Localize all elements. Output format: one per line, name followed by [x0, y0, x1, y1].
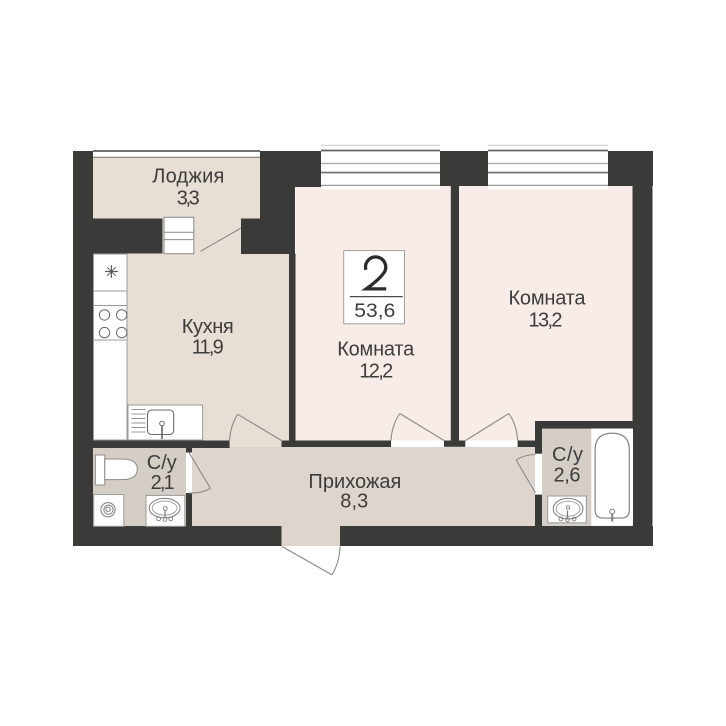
- svg-text:Комната: Комната: [337, 339, 415, 361]
- svg-text:11,9: 11,9: [192, 337, 224, 359]
- svg-text:53,6: 53,6: [354, 300, 395, 322]
- svg-text:Прихожая: Прихожая: [308, 471, 401, 493]
- svg-text:12,2: 12,2: [359, 361, 393, 383]
- svg-text:8,3: 8,3: [340, 491, 368, 513]
- svg-text:3,3: 3,3: [177, 187, 200, 209]
- svg-text:2,6: 2,6: [554, 465, 581, 487]
- svg-text:Лоджия: Лоджия: [152, 165, 224, 187]
- svg-text:С/у: С/у: [552, 444, 583, 466]
- svg-text:2,1: 2,1: [151, 472, 175, 494]
- svg-text:Кухня: Кухня: [182, 316, 234, 338]
- svg-text:Комната: Комната: [509, 288, 587, 310]
- svg-text:13,2: 13,2: [529, 310, 563, 332]
- svg-text:С/у: С/у: [147, 452, 177, 474]
